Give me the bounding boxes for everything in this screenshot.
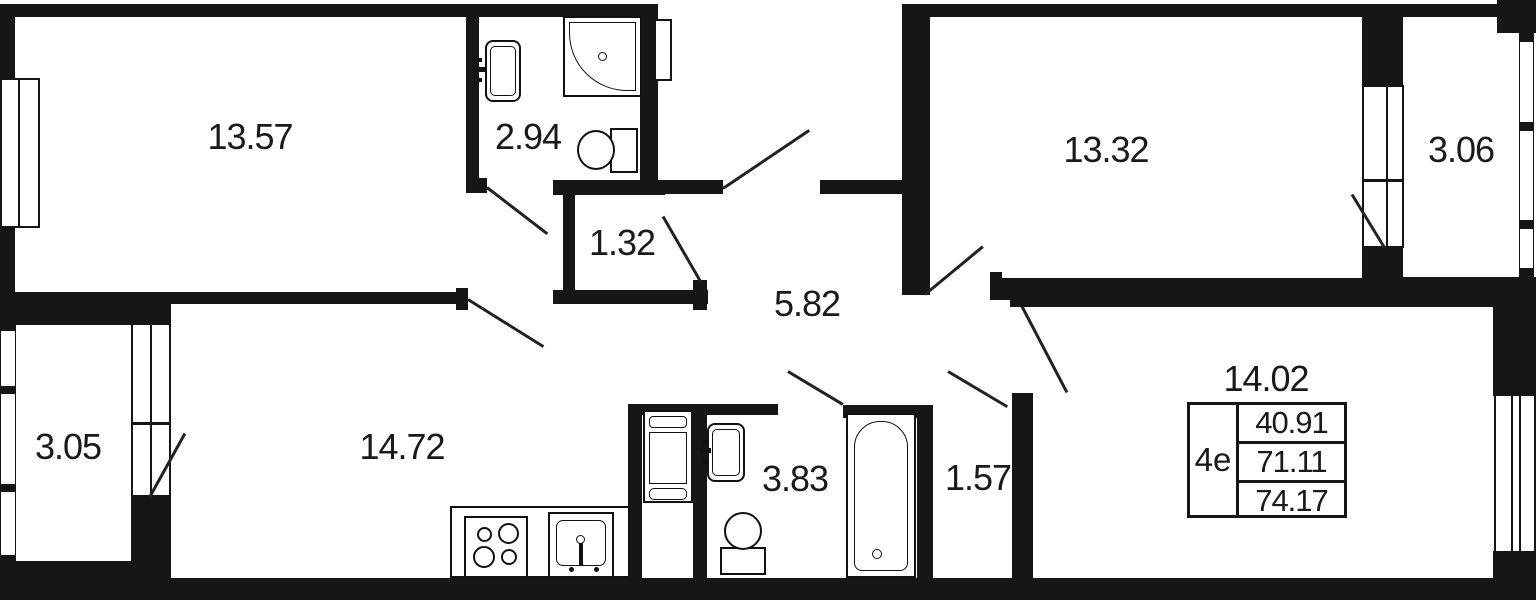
area-label-bathroom-top: 2.94 (495, 116, 561, 158)
area-summary-table: 4e 40.91 71.11 74.17 (1187, 402, 1347, 518)
wall (0, 292, 171, 325)
door-swing (947, 370, 1008, 408)
loggia-left-glazing-icon (0, 323, 16, 563)
wall (917, 407, 933, 578)
wall (456, 288, 468, 310)
bathtub-basin (854, 421, 908, 571)
window-frame-line (150, 325, 152, 495)
door-swing (662, 216, 703, 283)
wall (693, 280, 707, 310)
wall (0, 578, 1536, 600)
area-label-storage: 1.32 (589, 222, 655, 264)
area-label-hallway: 5.82 (774, 283, 840, 325)
wall (1010, 291, 1536, 307)
faucet-icon (700, 448, 711, 453)
door-swing (924, 246, 984, 296)
wall (820, 180, 905, 194)
stove-burner (473, 546, 495, 568)
wall (563, 184, 575, 292)
wall (553, 290, 708, 304)
window-frame-line (1386, 87, 1388, 246)
window-bedroom-left-icon (0, 78, 40, 228)
wall (905, 4, 1536, 17)
floor-plan: 13.57 2.94 1.32 5.82 13.32 3.06 3.05 14.… (0, 0, 1536, 600)
faucet-icon (579, 542, 583, 566)
toilet-icon (724, 512, 762, 550)
area-summary-values: 40.91 71.11 74.17 (1239, 405, 1344, 515)
wall (147, 292, 468, 304)
loggia-right-glazing-icon (1519, 33, 1534, 279)
door-swing (486, 186, 548, 235)
washbasin-bowl (490, 46, 516, 96)
entrance-door-swing (722, 129, 810, 190)
glazing-sill (1519, 268, 1534, 279)
washing-machine-door (649, 432, 687, 484)
wall (1493, 278, 1536, 396)
glazing-sill (0, 386, 16, 394)
faucet-dot (478, 78, 482, 82)
window-frame-line (18, 80, 20, 226)
glazing-sill (0, 323, 16, 331)
faucet-dot (478, 58, 482, 62)
window-room-right-icon (1494, 394, 1536, 553)
glazing-sill (1519, 33, 1534, 42)
area-label-loggia-right: 3.06 (1428, 129, 1494, 171)
area-label-kitchen-living: 14.72 (359, 426, 444, 468)
plan-type-label: 4e (1190, 405, 1239, 515)
stove-burner (477, 527, 492, 542)
apartment-area-value: 71.11 (1239, 444, 1344, 483)
faucet-dot (702, 440, 706, 444)
wall (640, 180, 723, 194)
living-area-value: 40.91 (1239, 405, 1344, 444)
area-label-loggia-left: 3.05 (35, 426, 101, 468)
faucet-icon (476, 67, 487, 72)
faucet-dot (702, 460, 706, 464)
bathtub-drain (872, 549, 882, 559)
faucet-knob (576, 535, 585, 544)
shower-drain (598, 52, 607, 61)
toilet-tank (720, 547, 766, 575)
total-area-value: 74.17 (1239, 483, 1344, 519)
wall (902, 4, 930, 295)
wall (0, 4, 15, 80)
window-frame-line (1364, 179, 1402, 182)
wall (4, 4, 658, 17)
area-label-bedroom-top-right: 13.32 (1063, 129, 1148, 171)
wall (1362, 4, 1403, 87)
stove-icon (464, 516, 528, 578)
window-frame-line (1511, 396, 1513, 551)
faucet-dot (569, 567, 574, 572)
glazing-sill (1519, 220, 1534, 229)
area-label-bedroom-top-left: 13.57 (207, 116, 292, 158)
area-label-hall-small: 1.57 (945, 457, 1011, 499)
wall (131, 495, 171, 580)
faucet-dot (594, 567, 599, 572)
stove-burner (501, 549, 517, 565)
washbasin-bowl (712, 429, 740, 476)
wall (466, 178, 487, 193)
wall (466, 15, 479, 180)
washing-machine-kick (649, 488, 687, 500)
stove-burner (498, 523, 519, 544)
door-swing (467, 298, 544, 348)
door-swing (1021, 306, 1069, 393)
washing-machine-drawer (649, 416, 687, 428)
wall (628, 404, 642, 578)
wall (0, 226, 15, 296)
area-label-bathroom-bottom: 3.83 (762, 458, 828, 500)
wall (1012, 393, 1033, 578)
glazing-sill (1519, 122, 1534, 131)
glazing-sill (0, 484, 16, 492)
area-label-room-bottom-right: 14.02 (1223, 358, 1308, 400)
window-frame-line (133, 422, 169, 425)
glazing-sill (0, 555, 16, 563)
window-frame-line (1519, 396, 1521, 551)
vent-shaft-icon (654, 19, 672, 81)
toilet-icon (577, 130, 615, 170)
wall (1497, 0, 1536, 33)
door-swing (787, 370, 843, 406)
wall (693, 404, 707, 578)
